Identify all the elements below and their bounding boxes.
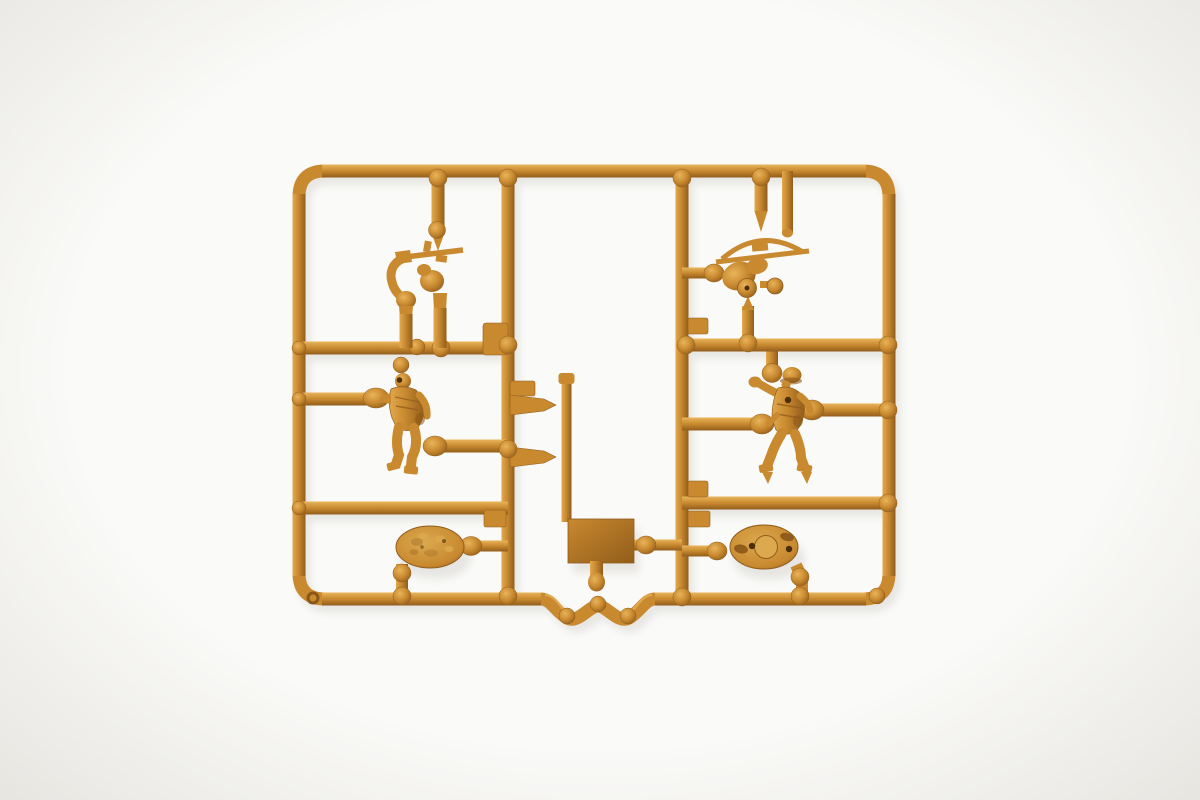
soldier-right-pouch <box>793 415 803 427</box>
stub-top-right-2 <box>782 171 793 233</box>
soldier-right-hand <box>749 377 762 388</box>
right-arm-bar <box>434 308 447 348</box>
node <box>791 587 809 605</box>
node <box>429 169 447 187</box>
soldier-left-leg-front <box>396 427 399 464</box>
node <box>879 494 897 512</box>
tab-v4-right-upper <box>688 318 708 334</box>
node <box>499 336 517 354</box>
node <box>879 401 897 419</box>
tab-v2-below-h4 <box>484 510 506 527</box>
gate-h6 <box>682 418 754 431</box>
node <box>292 341 306 355</box>
right-arm-gate <box>433 293 447 310</box>
gate-pad <box>636 536 656 554</box>
node <box>752 168 770 186</box>
node <box>739 334 757 352</box>
right-wrist <box>417 264 431 276</box>
node <box>429 222 446 239</box>
node <box>673 588 691 606</box>
plate-peg-ball <box>588 573 605 592</box>
gate-pad <box>762 364 782 383</box>
node <box>393 564 411 582</box>
left-arm-bar <box>400 314 413 348</box>
gate-h2 <box>299 393 369 406</box>
node <box>620 608 636 624</box>
tab-v2-right <box>510 381 535 396</box>
stub-top-right-2-end <box>782 229 793 238</box>
background <box>0 0 1200 800</box>
node <box>393 357 409 373</box>
gate-pad <box>707 542 727 560</box>
center-plate <box>568 519 634 563</box>
soldier-left-pouch <box>415 413 425 425</box>
frame-right-runner <box>883 194 896 576</box>
node <box>677 336 695 354</box>
soldier-left-boot-2 <box>404 465 419 474</box>
oval-base-left <box>396 526 464 568</box>
weapon-side-disc <box>767 278 783 294</box>
runner-h4 <box>299 502 508 515</box>
photo-canvas: Tan plastic model sprue with two soldier… <box>0 0 1200 800</box>
node <box>879 336 897 354</box>
node <box>791 568 809 586</box>
node <box>673 169 691 187</box>
sprue-photo: Tan plastic model sprue with two soldier… <box>0 0 1200 800</box>
thin-bar-v3-cap <box>559 373 575 384</box>
tab-v4-below-h8 <box>688 511 710 527</box>
weapon-wheel-hole <box>745 286 750 291</box>
gate-pad <box>704 264 724 282</box>
gate-pad <box>423 436 447 456</box>
soldier-right-chest-hole <box>785 397 791 403</box>
base-left-body <box>396 526 464 568</box>
soldier-left-head-hole <box>397 377 403 383</box>
node <box>292 392 306 406</box>
base-right-hole-2 <box>786 546 792 552</box>
node <box>393 587 411 605</box>
tab-v4-above-h8 <box>688 481 708 497</box>
base-right-center-boss <box>755 536 778 559</box>
base-right-hole-1 <box>749 543 755 549</box>
node <box>499 440 517 458</box>
node <box>292 501 306 515</box>
runner-h8 <box>682 497 890 510</box>
node <box>869 588 885 604</box>
node <box>590 596 606 612</box>
runner-h3 <box>438 440 508 453</box>
runner-h5 <box>682 339 890 352</box>
node <box>559 608 575 624</box>
node <box>499 169 517 187</box>
frame-left-runner <box>293 194 306 576</box>
runner-v4 <box>676 171 689 599</box>
thin-bar-v3 <box>562 380 572 522</box>
soldier-left-leg-back <box>411 428 416 466</box>
oval-base-right <box>730 525 798 569</box>
node <box>499 587 517 605</box>
weapon-sight <box>752 242 769 251</box>
